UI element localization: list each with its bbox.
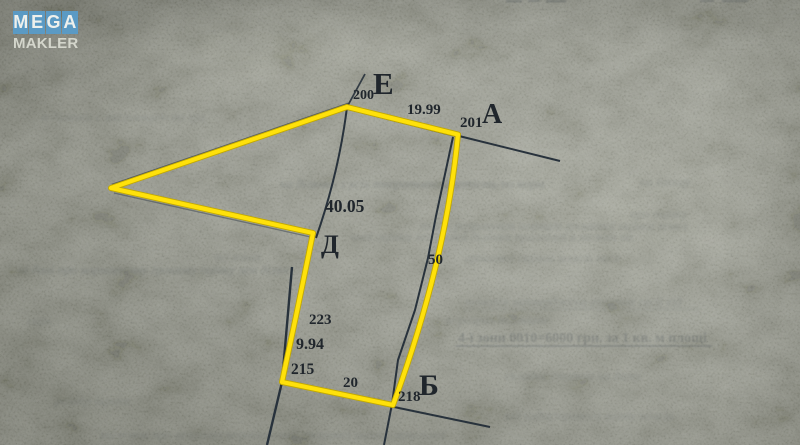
svg-text:4-ї зони 0010=6000 грн. за 1 к: 4-ї зони 0010=6000 грн. за 1 кв. м площі — [458, 331, 707, 346]
svg-text:оцін: оцін — [28, 313, 51, 328]
svg-text:грошової оцінки земель насе: грошової оцінки земель насе — [465, 250, 621, 265]
svg-text:розмір оцінки: розмір оцінки — [54, 393, 130, 408]
svg-text:висновок про величину норматив: висновок про величину нормативної грошов… — [100, 427, 447, 442]
svg-text:50: 50 — [428, 252, 443, 268]
svg-text:м ділянки с заг площею по вул: м ділянки с заг площею по вул — [39, 109, 205, 124]
svg-text:ні дані про нормативну грошову: ні дані про нормативну грошову оцінку зе… — [18, 262, 289, 277]
svg-text:Б: Б — [419, 369, 439, 402]
svg-text:пунктів затверджена рішення се: пунктів затверджена рішення сесії від — [465, 294, 682, 309]
svg-text:по зонах: по зонах — [215, 249, 262, 264]
svg-text:А: А — [482, 99, 503, 130]
svg-text:на ділянки з усіх тнеративна в: на ділянки з усіх тнеративна вартість по… — [280, 176, 544, 191]
svg-text:200: 200 — [353, 88, 374, 103]
svg-text:20: 20 — [343, 375, 358, 391]
svg-text:на площу: на площу — [640, 174, 691, 189]
svg-text:Д: Д — [321, 230, 339, 259]
svg-text:від кадастрового плану земель: від кадастрового плану земель — [505, 408, 675, 423]
svg-text:223: 223 — [309, 312, 332, 328]
svg-text:218: 218 — [398, 389, 421, 405]
svg-text:зг розрах величини: зг розрах величини — [444, 312, 548, 327]
svg-text:чної оцінки земельної ділянки: чної оцінки земельної ділянки прилеглої … — [350, 229, 634, 244]
svg-text:9.94: 9.94 — [296, 336, 324, 353]
svg-text:Е: Е — [373, 66, 394, 101]
svg-text:складає станом на дату: складає станом на дату — [505, 368, 642, 383]
svg-text:40.05: 40.05 — [325, 196, 365, 216]
svg-text:19.99: 19.99 — [407, 102, 441, 118]
svg-text:215: 215 — [291, 361, 315, 378]
svg-text:201: 201 — [460, 115, 483, 131]
